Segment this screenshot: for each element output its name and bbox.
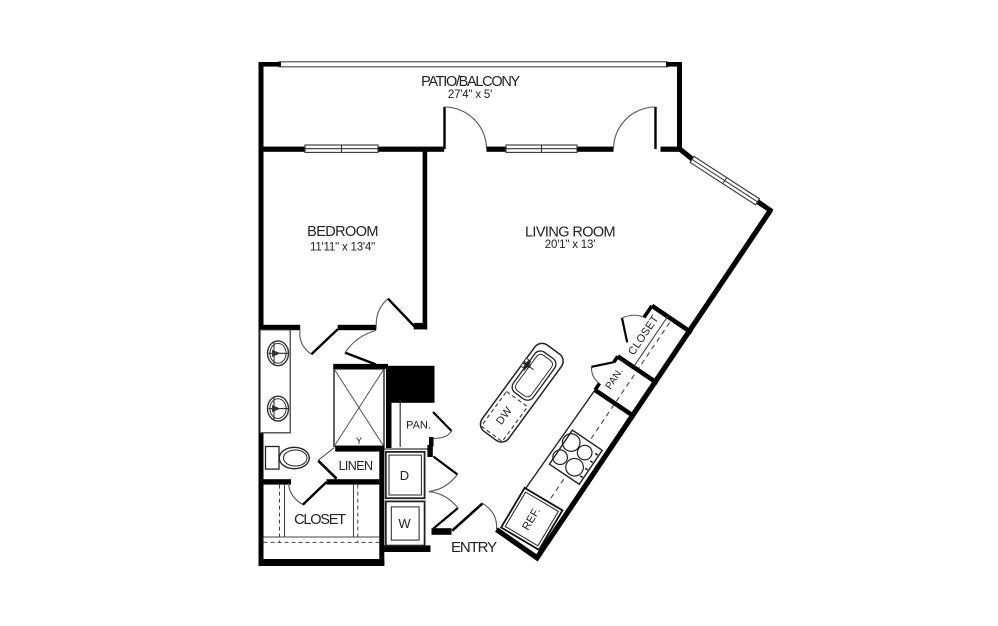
- svg-text:BEDROOM: BEDROOM: [307, 224, 378, 240]
- svg-text:11'11" x 13'4": 11'11" x 13'4": [310, 242, 375, 254]
- svg-text:20'1" x 13': 20'1" x 13': [545, 239, 595, 251]
- svg-text:ENTRY: ENTRY: [451, 539, 497, 556]
- svg-text:W: W: [398, 516, 411, 531]
- svg-text:LINEN: LINEN: [339, 459, 373, 473]
- svg-text:27'4" x 5': 27'4" x 5': [448, 89, 492, 101]
- svg-text:PAN.: PAN.: [406, 420, 431, 432]
- svg-text:CLOSET: CLOSET: [294, 512, 346, 528]
- svg-text:PATIO/BALCONY: PATIO/BALCONY: [421, 74, 520, 90]
- svg-text:D: D: [400, 468, 409, 483]
